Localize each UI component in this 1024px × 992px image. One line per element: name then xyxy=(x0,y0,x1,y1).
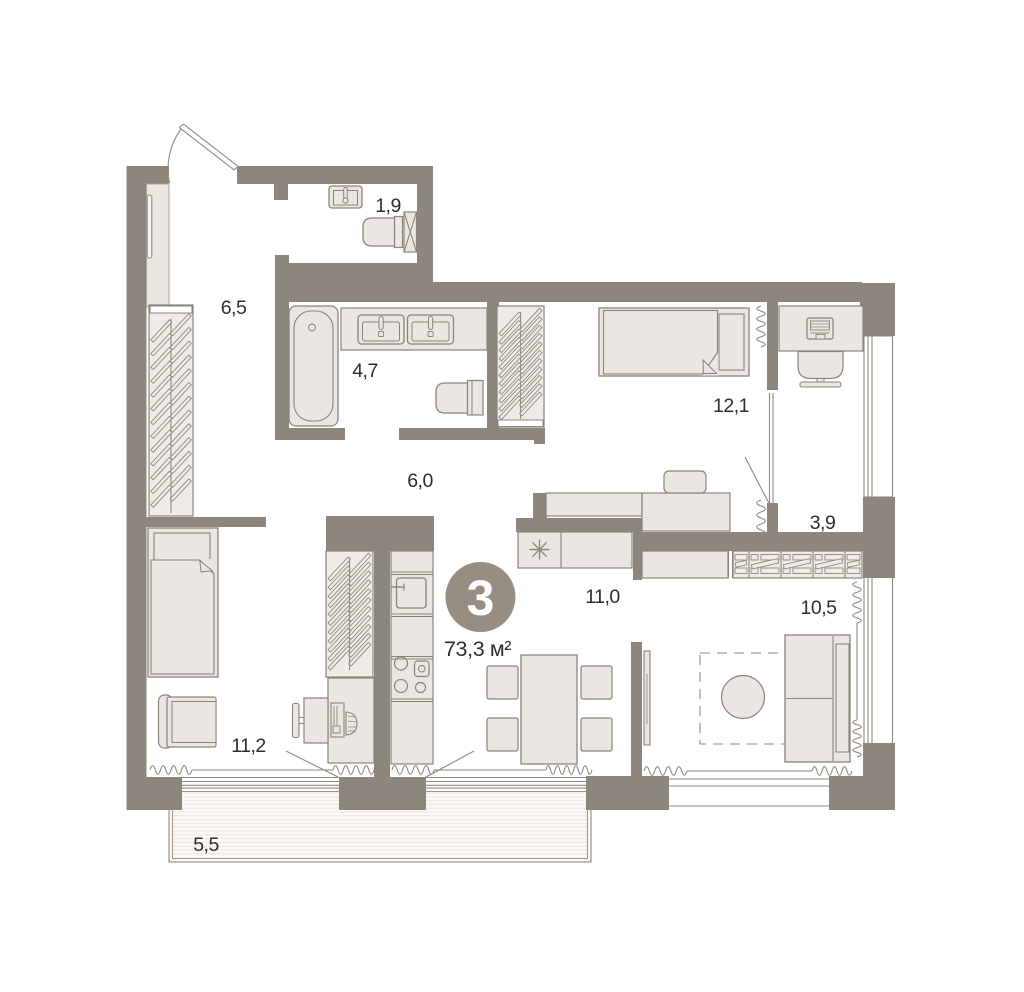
svg-text:6,5: 6,5 xyxy=(221,297,247,319)
svg-text:5,5: 5,5 xyxy=(193,834,219,856)
svg-text:6,0: 6,0 xyxy=(407,470,433,492)
svg-text:12,1: 12,1 xyxy=(713,395,749,417)
svg-text:73,3 м²: 73,3 м² xyxy=(444,637,511,661)
svg-text:4,7: 4,7 xyxy=(352,360,378,382)
svg-text:11,0: 11,0 xyxy=(585,586,620,608)
svg-text:3: 3 xyxy=(467,570,495,626)
svg-text:3,9: 3,9 xyxy=(810,512,836,534)
svg-text:1,9: 1,9 xyxy=(375,195,401,217)
svg-text:11,2: 11,2 xyxy=(231,735,266,757)
svg-text:10,5: 10,5 xyxy=(801,597,838,619)
